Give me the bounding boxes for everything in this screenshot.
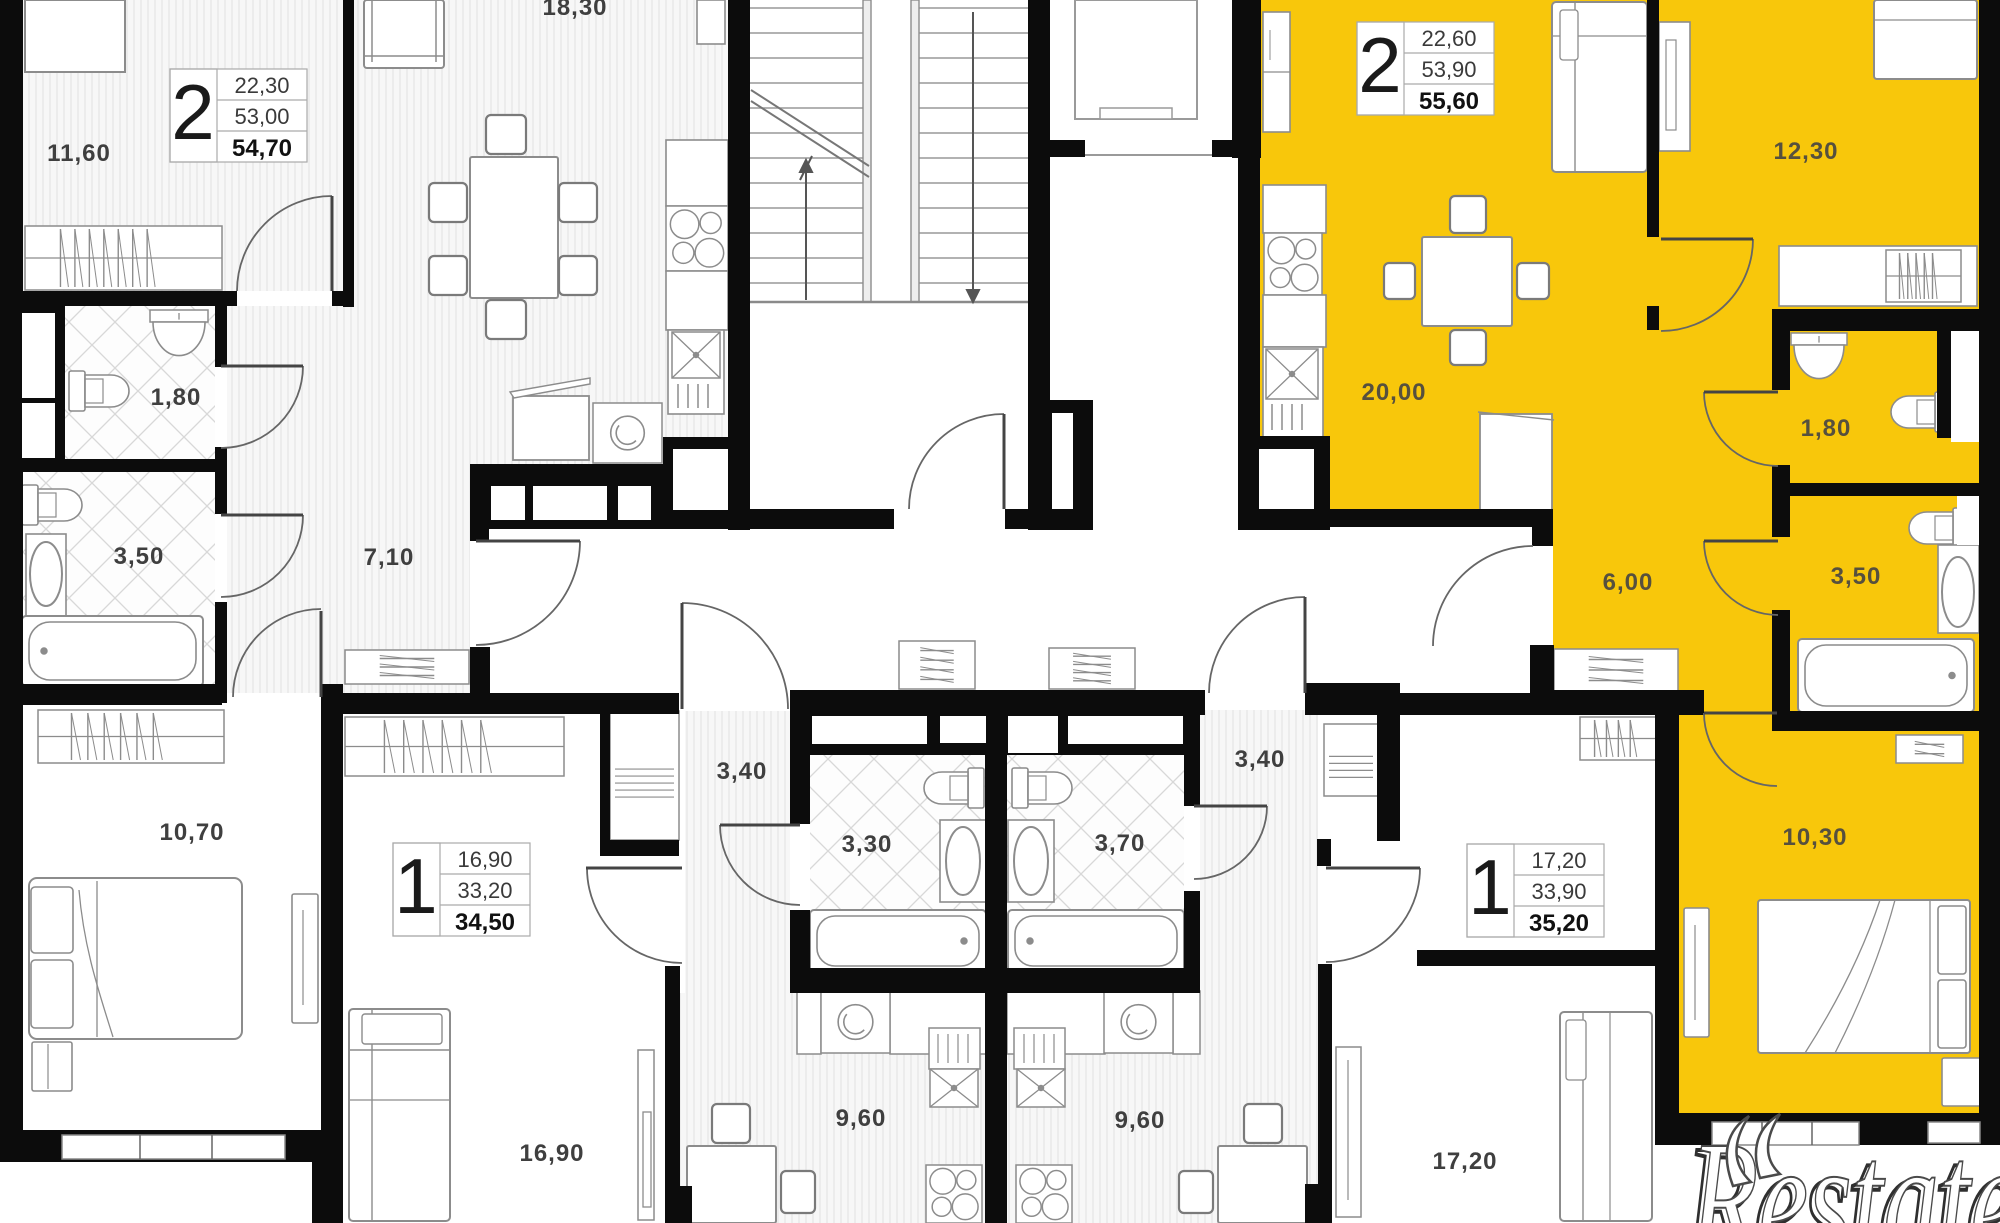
svg-text:3,30: 3,30 [842,831,893,858]
svg-text:17,20: 17,20 [1531,848,1586,873]
svg-text:35,20: 35,20 [1529,910,1589,937]
svg-text:7,10: 7,10 [364,544,415,571]
svg-text:1,80: 1,80 [151,384,202,411]
svg-text:54,70: 54,70 [232,135,292,162]
svg-text:22,30: 22,30 [234,73,289,98]
svg-text:11,60: 11,60 [47,140,111,167]
svg-text:18,30: 18,30 [542,0,607,21]
svg-text:10,70: 10,70 [159,819,224,846]
svg-text:53,00: 53,00 [234,104,289,129]
svg-text:9,60: 9,60 [836,1105,887,1132]
svg-text:2: 2 [171,68,214,156]
svg-text:3,50: 3,50 [1831,563,1882,590]
svg-text:33,20: 33,20 [457,878,512,903]
svg-text:12,30: 12,30 [1773,138,1838,165]
svg-text:20,00: 20,00 [1361,379,1426,406]
svg-text:53,90: 53,90 [1421,57,1476,82]
svg-text:3,40: 3,40 [1235,746,1286,773]
svg-text:9,60: 9,60 [1115,1107,1166,1134]
svg-text:1: 1 [1468,843,1511,931]
svg-text:10,30: 10,30 [1782,824,1847,851]
svg-text:1,80: 1,80 [1801,415,1852,442]
svg-text:33,90: 33,90 [1531,879,1586,904]
svg-text:17,20: 17,20 [1432,1148,1497,1175]
svg-text:2: 2 [1358,21,1401,109]
svg-text:3,50: 3,50 [114,543,165,570]
svg-text:3,40: 3,40 [717,758,768,785]
svg-text:16,90: 16,90 [457,847,512,872]
svg-text:3,70: 3,70 [1095,830,1146,857]
svg-text:22,60: 22,60 [1421,26,1476,51]
svg-text:6,00: 6,00 [1603,569,1654,596]
svg-text:34,50: 34,50 [455,909,515,936]
svg-text:1: 1 [394,842,437,930]
svg-text:16,90: 16,90 [519,1140,584,1167]
svg-text:55,60: 55,60 [1419,88,1479,115]
